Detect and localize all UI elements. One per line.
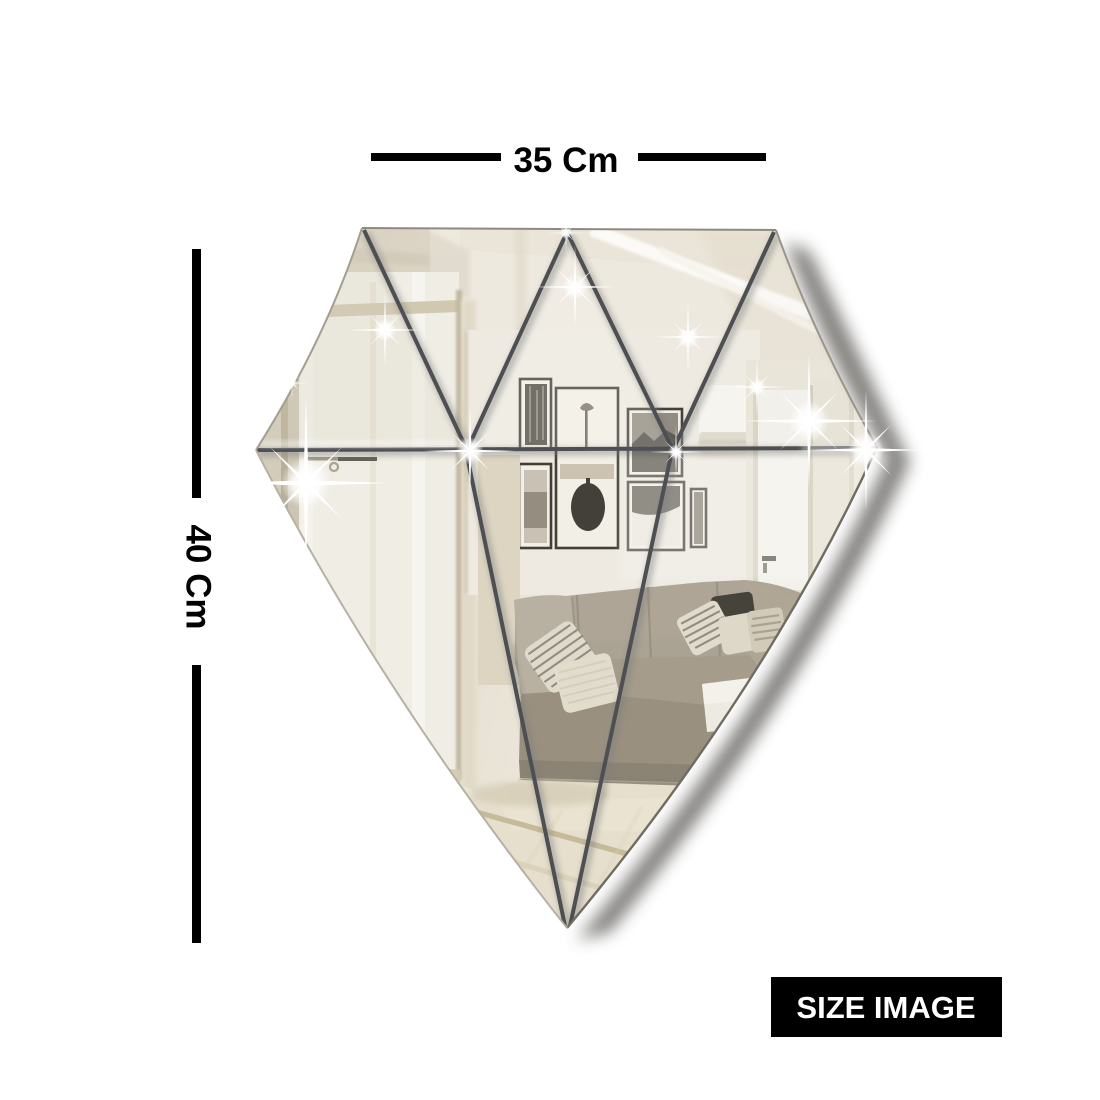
svg-text:SIZE IMAGE: SIZE IMAGE (796, 990, 975, 1025)
svg-text:40 Cm: 40 Cm (179, 524, 218, 629)
svg-text:35 Cm: 35 Cm (513, 141, 618, 180)
